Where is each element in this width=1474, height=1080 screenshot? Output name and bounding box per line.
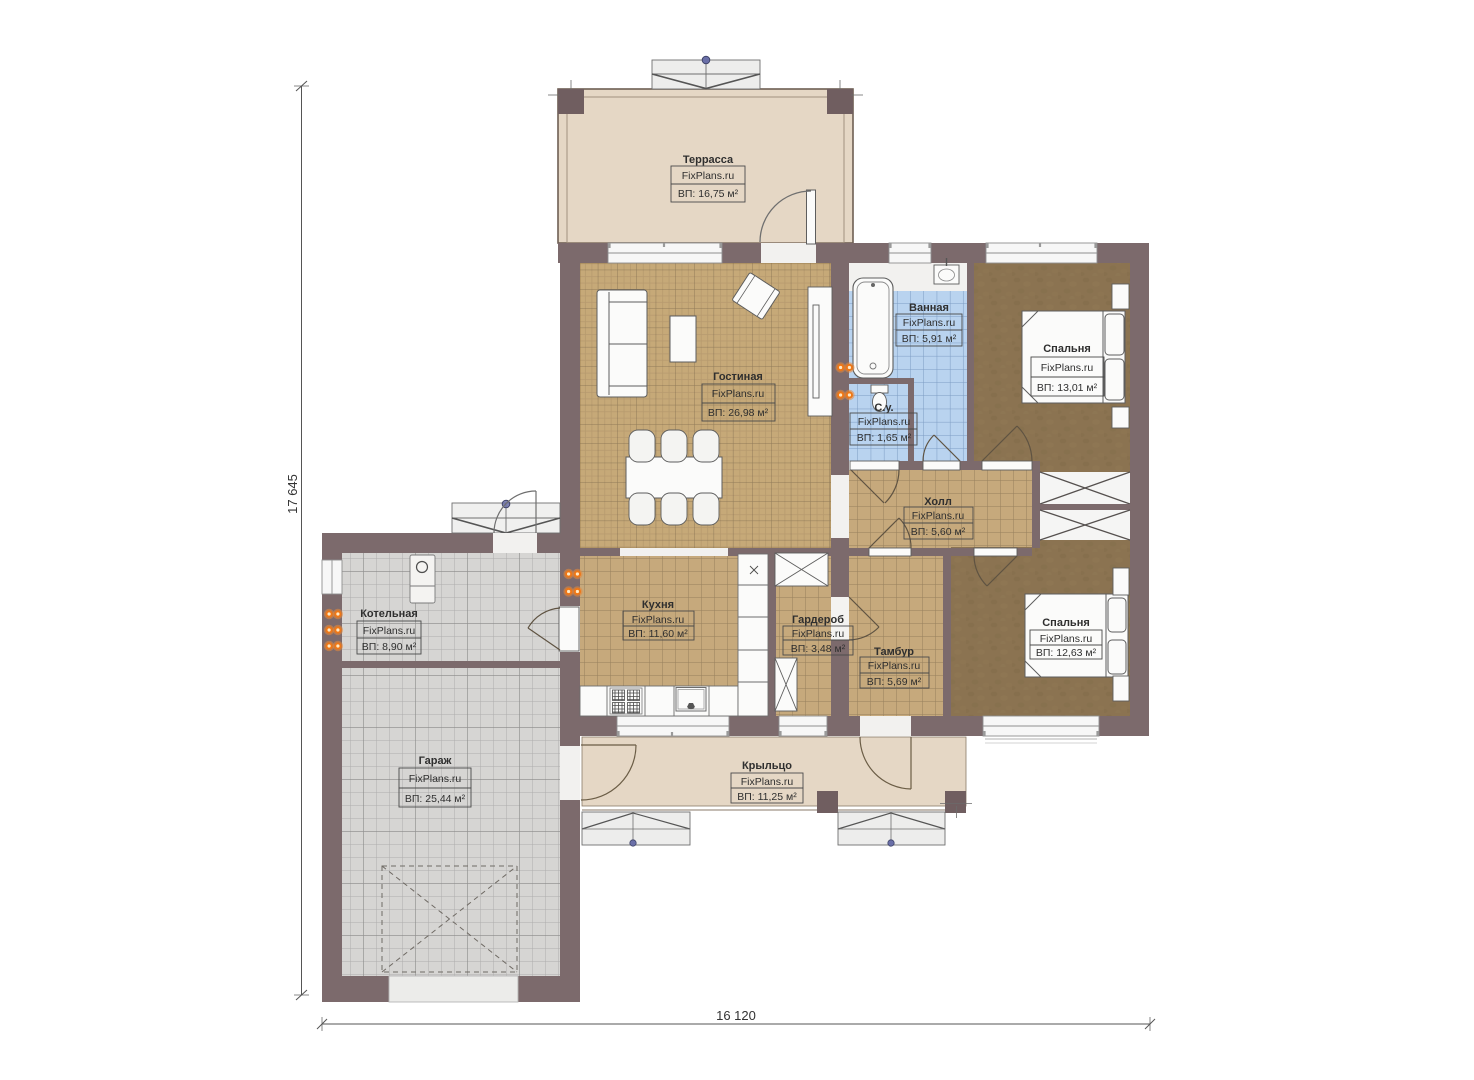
svg-text:Крыльцо: Крыльцо [742, 760, 792, 772]
svg-text:Террасса: Террасса [683, 154, 734, 166]
svg-text:Котельная: Котельная [360, 608, 418, 620]
svg-text:ВП: 25,44 м²: ВП: 25,44 м² [405, 793, 466, 805]
svg-text:Гостиная: Гостиная [713, 371, 763, 383]
svg-text:ВП: 5,91 м²: ВП: 5,91 м² [902, 333, 957, 345]
svg-text:16 120: 16 120 [716, 1008, 756, 1023]
svg-text:ВП: 13,01 м²: ВП: 13,01 м² [1037, 382, 1098, 394]
svg-text:Спальня: Спальня [1042, 617, 1090, 629]
svg-text:FixPlans.ru: FixPlans.ru [792, 628, 845, 640]
svg-text:Гараж: Гараж [419, 755, 452, 767]
svg-text:ВП: 5,60 м²: ВП: 5,60 м² [911, 526, 966, 538]
svg-text:ВП: 11,60 м²: ВП: 11,60 м² [628, 628, 688, 640]
svg-text:Ванная: Ванная [909, 302, 949, 314]
svg-text:FixPlans.ru: FixPlans.ru [632, 614, 685, 626]
svg-text:ВП: 11,25 м²: ВП: 11,25 м² [737, 791, 797, 803]
svg-text:17 645: 17 645 [285, 474, 300, 514]
svg-text:С.у.: С.у. [874, 402, 893, 414]
svg-text:Спальня: Спальня [1043, 343, 1091, 355]
svg-text:Тамбур: Тамбур [874, 646, 914, 658]
svg-text:FixPlans.ru: FixPlans.ru [409, 773, 462, 785]
svg-text:ВП: 1,65 м²: ВП: 1,65 м² [857, 432, 912, 444]
svg-text:ВП: 16,75 м²: ВП: 16,75 м² [678, 188, 739, 200]
svg-text:ВП: 3,48 м²: ВП: 3,48 м² [791, 643, 846, 655]
svg-text:FixPlans.ru: FixPlans.ru [363, 625, 416, 637]
svg-text:ВП: 12,63 м²: ВП: 12,63 м² [1036, 647, 1097, 659]
svg-text:Гардероб: Гардероб [792, 614, 844, 626]
svg-text:FixPlans.ru: FixPlans.ru [682, 170, 735, 182]
svg-text:FixPlans.ru: FixPlans.ru [712, 388, 765, 400]
svg-text:FixPlans.ru: FixPlans.ru [1040, 633, 1093, 645]
svg-text:FixPlans.ru: FixPlans.ru [741, 776, 794, 788]
svg-text:ВП: 26,98 м²: ВП: 26,98 м² [708, 407, 769, 419]
svg-text:ВП: 8,90 м²: ВП: 8,90 м² [362, 641, 417, 653]
svg-text:Холл: Холл [924, 496, 952, 508]
svg-text:ВП: 5,69 м²: ВП: 5,69 м² [867, 676, 922, 688]
svg-text:FixPlans.ru: FixPlans.ru [912, 510, 965, 522]
svg-text:FixPlans.ru: FixPlans.ru [1041, 362, 1094, 374]
svg-text:Кухня: Кухня [642, 599, 674, 611]
svg-text:FixPlans.ru: FixPlans.ru [868, 660, 921, 672]
svg-text:FixPlans.ru: FixPlans.ru [858, 416, 911, 428]
svg-text:FixPlans.ru: FixPlans.ru [903, 317, 956, 329]
